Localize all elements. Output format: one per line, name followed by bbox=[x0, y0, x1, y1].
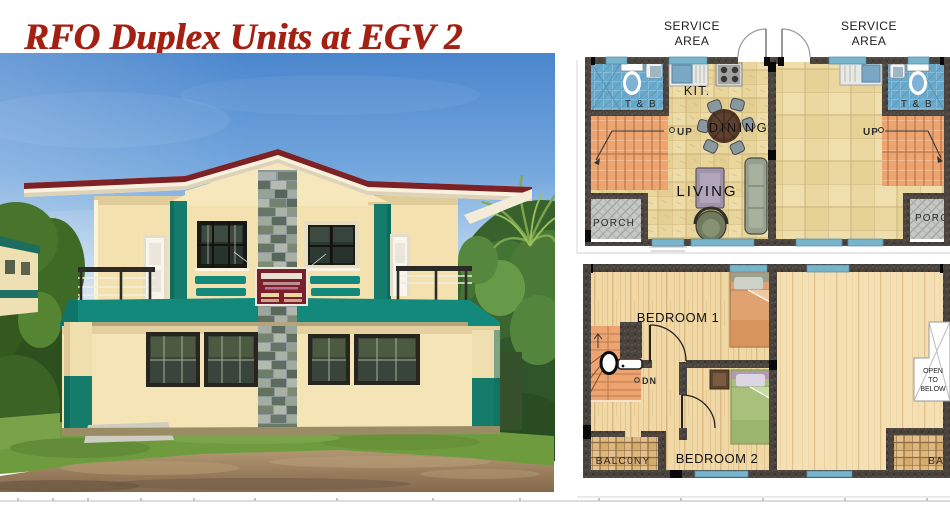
svg-text:T & B: T & B bbox=[901, 99, 933, 110]
svg-text:BEDROOM 2: BEDROOM 2 bbox=[676, 451, 759, 466]
svg-text:SERVICE: SERVICE bbox=[664, 19, 720, 33]
svg-text:BEDROOM 1: BEDROOM 1 bbox=[637, 310, 720, 325]
svg-text:AREA: AREA bbox=[852, 34, 887, 48]
svg-text:DINING: DINING bbox=[709, 120, 770, 135]
svg-text:SERVICE: SERVICE bbox=[841, 19, 897, 33]
svg-text:UP: UP bbox=[863, 127, 879, 138]
svg-text:LIVING: LIVING bbox=[676, 183, 737, 200]
svg-text:OPEN: OPEN bbox=[923, 368, 943, 375]
svg-text:AREA: AREA bbox=[675, 34, 710, 48]
svg-text:DN: DN bbox=[642, 376, 657, 386]
svg-text:TO: TO bbox=[928, 377, 938, 384]
svg-text:BELOW: BELOW bbox=[920, 386, 946, 393]
svg-text:BALC0NY: BALC0NY bbox=[596, 455, 651, 467]
svg-text:UP: UP bbox=[677, 127, 693, 138]
svg-text:PORCH: PORCH bbox=[593, 218, 635, 229]
svg-text:T & B: T & B bbox=[625, 99, 657, 110]
svg-text:KIT.: KIT. bbox=[684, 83, 710, 98]
